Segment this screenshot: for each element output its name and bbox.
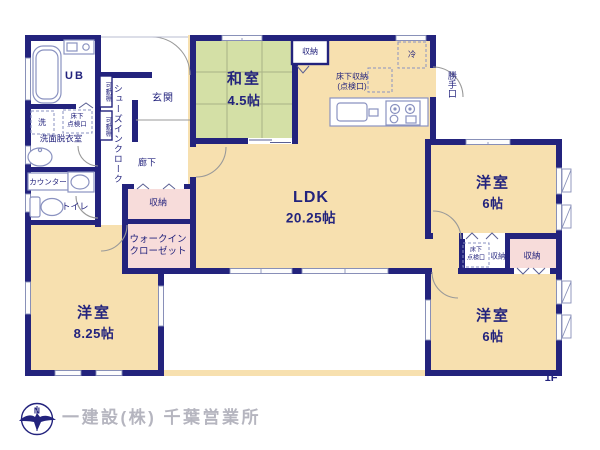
movable-shelf-label-2: 可動棚 [102, 114, 111, 140]
underfloor-storage-line1: 床下収納 [336, 72, 368, 82]
compass-north-label: N [34, 406, 40, 417]
company-name: 一建設(株) 千葉営業所 [62, 403, 261, 428]
shoe-closet-label: シューズインクローク [112, 84, 122, 162]
hall-storage-label: 収納 [149, 197, 167, 208]
ldk-size: 20.25帖 [286, 211, 336, 228]
floor-hatch-line1: 床下 [67, 113, 87, 121]
counter-label: カウンター [29, 177, 67, 186]
washitsu-name: 和室 [227, 71, 261, 90]
back-door-label: 勝手口 [446, 64, 456, 104]
floor-hatch-line2: 点検口 [67, 121, 87, 129]
walkin-closet-label: ウォークイン クローゼット [129, 234, 186, 258]
underfloor-storage-label: 床下収納 (点検口) [336, 72, 368, 92]
floor-label: 1F [545, 372, 558, 386]
toilet-fixture [30, 197, 40, 217]
closet-hatch-line1: 床下 [467, 248, 485, 256]
walkin-closet-line2: クローゼット [129, 246, 186, 258]
closet-ne-label: 収納 [491, 251, 506, 260]
refrigerator-label: 冷 [408, 50, 416, 60]
kitchen-sink [337, 103, 367, 121]
bedroom-sw-name: 洋室 [77, 305, 111, 324]
bedroom-ne-size: 6帖 [482, 196, 503, 212]
underfloor-storage-line2: (点検口) [336, 82, 368, 92]
floor-plan: UB 洗 床下 点検口 洗面脱衣室 カウンター トイレ 可動棚 可動棚 シューズ… [0, 0, 600, 450]
washitsu-size: 4.5帖 [227, 93, 260, 109]
bedroom-sw-size: 8.25帖 [74, 326, 115, 342]
unit-bath-label: UB [65, 70, 85, 84]
washer-label: 洗 [38, 118, 46, 128]
bedroom-se-name: 洋室 [476, 308, 510, 327]
closet-hatch-line2: 点検口 [467, 255, 485, 263]
toilet-label: トイレ [61, 201, 88, 212]
closet-hatch-label: 床下 点検口 [467, 248, 485, 263]
washroom-label: 洗面脱衣室 [40, 134, 83, 145]
entry-storage-label: 収納 [302, 47, 318, 57]
walkin-closet-line1: ウォークイン [129, 234, 186, 246]
ldk-name: LDK [293, 188, 329, 208]
genkan-label: 玄関 [152, 93, 174, 106]
floor-hatch-label: 床下 点検口 [67, 113, 87, 129]
bedroom-se-size: 6帖 [482, 329, 503, 345]
movable-shelf-label-1: 可動棚 [102, 79, 111, 105]
hallway-label: 廊下 [138, 157, 156, 168]
closet-se-label: 収納 [523, 251, 540, 262]
bedroom-ne-name: 洋室 [476, 175, 510, 194]
